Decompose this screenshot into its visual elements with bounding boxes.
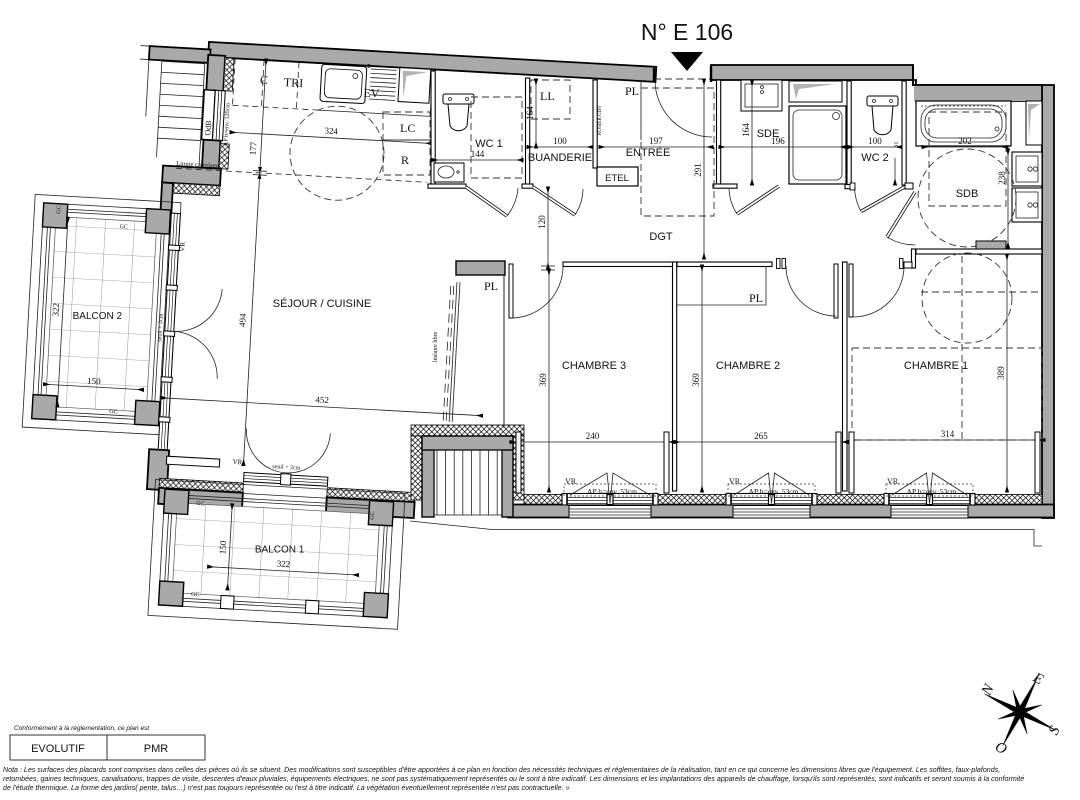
svg-text:GC: GC [196, 501, 205, 507]
svg-text:494: 494 [237, 313, 248, 328]
svg-text:LL: LL [540, 89, 555, 103]
svg-text:Conformément à la réglementati: Conformément à la réglementation, ce pla… [14, 725, 150, 732]
svg-text:CHAMBRE 2: CHAMBRE 2 [716, 360, 780, 372]
svg-text:ETEL: ETEL [605, 173, 629, 184]
svg-text:GC: GC [191, 592, 200, 598]
svg-text:324: 324 [324, 125, 339, 136]
svg-text:100: 100 [553, 136, 567, 146]
svg-text:31: 31 [893, 142, 900, 149]
svg-text:de l'étude thermique. La forme: de l'étude thermique. La forme des jardi… [3, 784, 570, 792]
svg-text:BUANDERIE: BUANDERIE [528, 152, 592, 164]
svg-text:PL: PL [749, 291, 763, 305]
svg-text:CHAMBRE 3: CHAMBRE 3 [562, 360, 626, 372]
svg-text:OdB: OdB [203, 120, 213, 136]
svg-text:GC: GC [109, 409, 118, 415]
svg-text:177: 177 [248, 141, 259, 156]
svg-text:retombées, gaines techniques,: retombées, gaines techniques, canalisati… [3, 775, 1024, 783]
svg-text:VR: VR [729, 477, 741, 486]
svg-text:100: 100 [868, 136, 882, 146]
svg-text:ROSIER GDS: ROSIER GDS [598, 106, 603, 135]
svg-text:DGT: DGT [649, 231, 673, 243]
svg-text:AP h=env. 53cm: AP h=env. 53cm [749, 487, 799, 496]
svg-text:N° E 106: N° E 106 [641, 19, 733, 45]
svg-text:GC: GC [370, 511, 376, 520]
svg-text:322: 322 [50, 303, 61, 317]
svg-text:120: 120 [537, 215, 547, 229]
svg-text:164: 164 [741, 123, 751, 137]
svg-text:452: 452 [315, 394, 329, 405]
svg-text:PL: PL [625, 84, 639, 98]
svg-text:AP h=env. 53cm: AP h=env. 53cm [907, 487, 957, 496]
svg-text:PMR: PMR [144, 743, 169, 755]
svg-text:LC: LC [400, 121, 415, 135]
svg-text:EVOLUTIF: EVOLUTIF [31, 743, 85, 755]
svg-text:TRI: TRI [283, 75, 303, 90]
svg-text:196: 196 [771, 136, 785, 146]
svg-text:240: 240 [586, 431, 600, 441]
svg-text:369: 369 [691, 373, 701, 387]
svg-text:VR: VR [232, 458, 242, 467]
svg-text:144: 144 [471, 149, 485, 159]
svg-text:150: 150 [87, 376, 102, 387]
svg-text:SÉJOUR / CUISINE: SÉJOUR / CUISINE [273, 297, 371, 310]
svg-text:BALCON 2: BALCON 2 [73, 311, 123, 322]
svg-text:314: 314 [941, 429, 955, 439]
svg-text:BALCON 1: BALCON 1 [255, 545, 305, 556]
svg-text:389: 389 [996, 366, 1006, 380]
svg-text:ENTRÉE: ENTRÉE [626, 146, 671, 159]
svg-text:linéaire libre: linéaire libre [433, 331, 439, 362]
svg-text:VR: VR [565, 477, 577, 486]
svg-text:202: 202 [958, 136, 972, 146]
svg-text:GC: GC [119, 224, 128, 230]
svg-text:C: C [260, 73, 269, 87]
svg-text:238: 238 [997, 171, 1007, 185]
svg-text:164: 164 [525, 106, 535, 120]
svg-text:AP h=env. 53cm: AP h=env. 53cm [587, 487, 637, 496]
svg-text:EV: EV [363, 86, 380, 101]
svg-text:265: 265 [754, 431, 768, 441]
svg-text:GC: GC [56, 205, 62, 214]
svg-text:197: 197 [649, 136, 663, 146]
svg-text:WC 2: WC 2 [861, 152, 889, 164]
svg-text:CHAMBRE 1: CHAMBRE 1 [904, 360, 968, 372]
svg-text:SDB: SDB [956, 188, 979, 200]
svg-text:R: R [401, 153, 409, 167]
svg-text:PL: PL [484, 279, 498, 293]
svg-text:Nota : Les surfaces des placar: Nota : Les surfaces des placards sont co… [3, 766, 1000, 774]
svg-text:322: 322 [276, 558, 290, 569]
svg-text:150: 150 [217, 540, 228, 555]
svg-text:291: 291 [693, 163, 703, 177]
svg-text:VR: VR [887, 477, 899, 486]
svg-text:369: 369 [538, 373, 548, 387]
svg-text:VR: VR [178, 241, 187, 251]
